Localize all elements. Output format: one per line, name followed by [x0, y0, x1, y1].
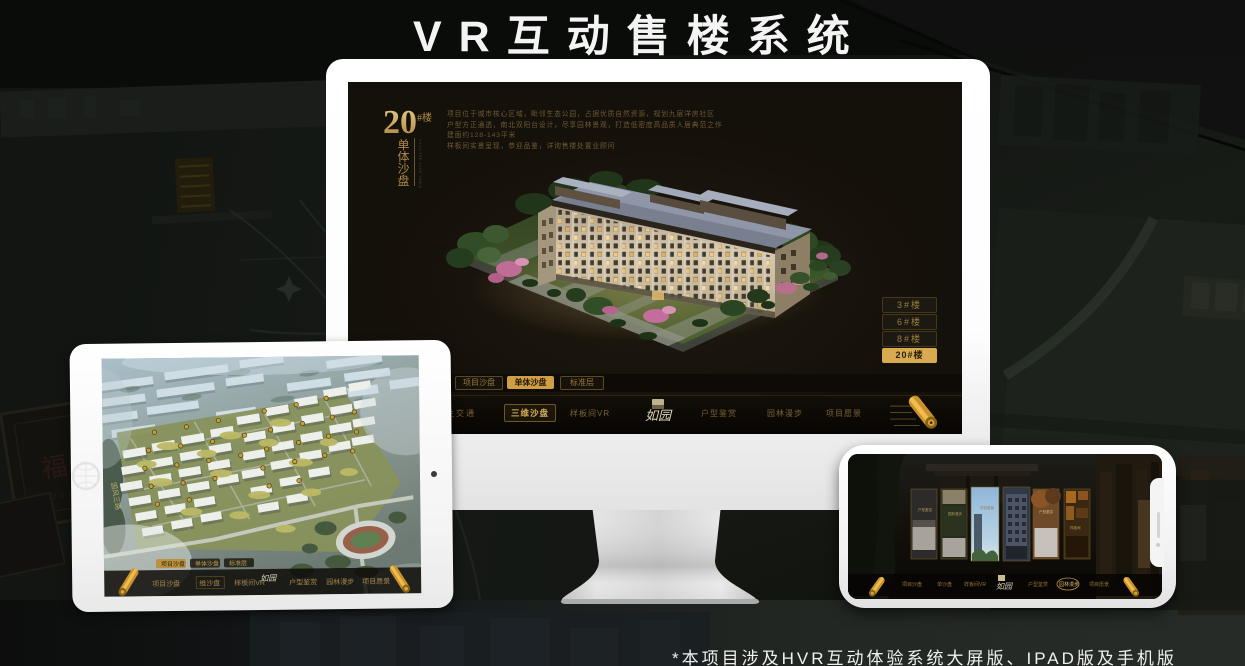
svg-text:项目愿景: 项目愿景: [980, 505, 994, 510]
svg-text:户型鉴赏: 户型鉴赏: [289, 577, 317, 586]
svg-text:园林漫步: 园林漫步: [326, 577, 354, 586]
svg-text:单体沙盘: 单体沙盘: [195, 559, 219, 567]
svg-text:项目沙盘: 项目沙盘: [902, 581, 922, 588]
svg-text:户型鉴赏: 户型鉴赏: [1039, 509, 1054, 514]
svg-text:户型鉴赏: 户型鉴赏: [918, 507, 932, 512]
svg-text:样板间: 样板间: [1070, 525, 1081, 530]
svg-text:项目沙盘: 项目沙盘: [161, 560, 185, 568]
svg-text:维沙盘: 维沙盘: [199, 578, 220, 587]
svg-text:园林漫步: 园林漫步: [948, 511, 962, 516]
svg-text:园林漫步: 园林漫步: [1059, 581, 1079, 588]
svg-text:项目愿景: 项目愿景: [1089, 581, 1109, 588]
svg-text:样板间VR: 样板间VR: [964, 581, 986, 588]
svg-text:标准层: 标准层: [229, 559, 247, 567]
svg-text:项目沙盘: 项目沙盘: [152, 579, 180, 588]
svg-text:如园: 如园: [996, 582, 1013, 591]
svg-text:项目愿景: 项目愿景: [362, 578, 390, 586]
svg-text:如园: 如园: [260, 574, 277, 583]
svg-text:户型鉴赏: 户型鉴赏: [1028, 581, 1048, 588]
svg-text:单沙盘: 单沙盘: [937, 581, 952, 588]
